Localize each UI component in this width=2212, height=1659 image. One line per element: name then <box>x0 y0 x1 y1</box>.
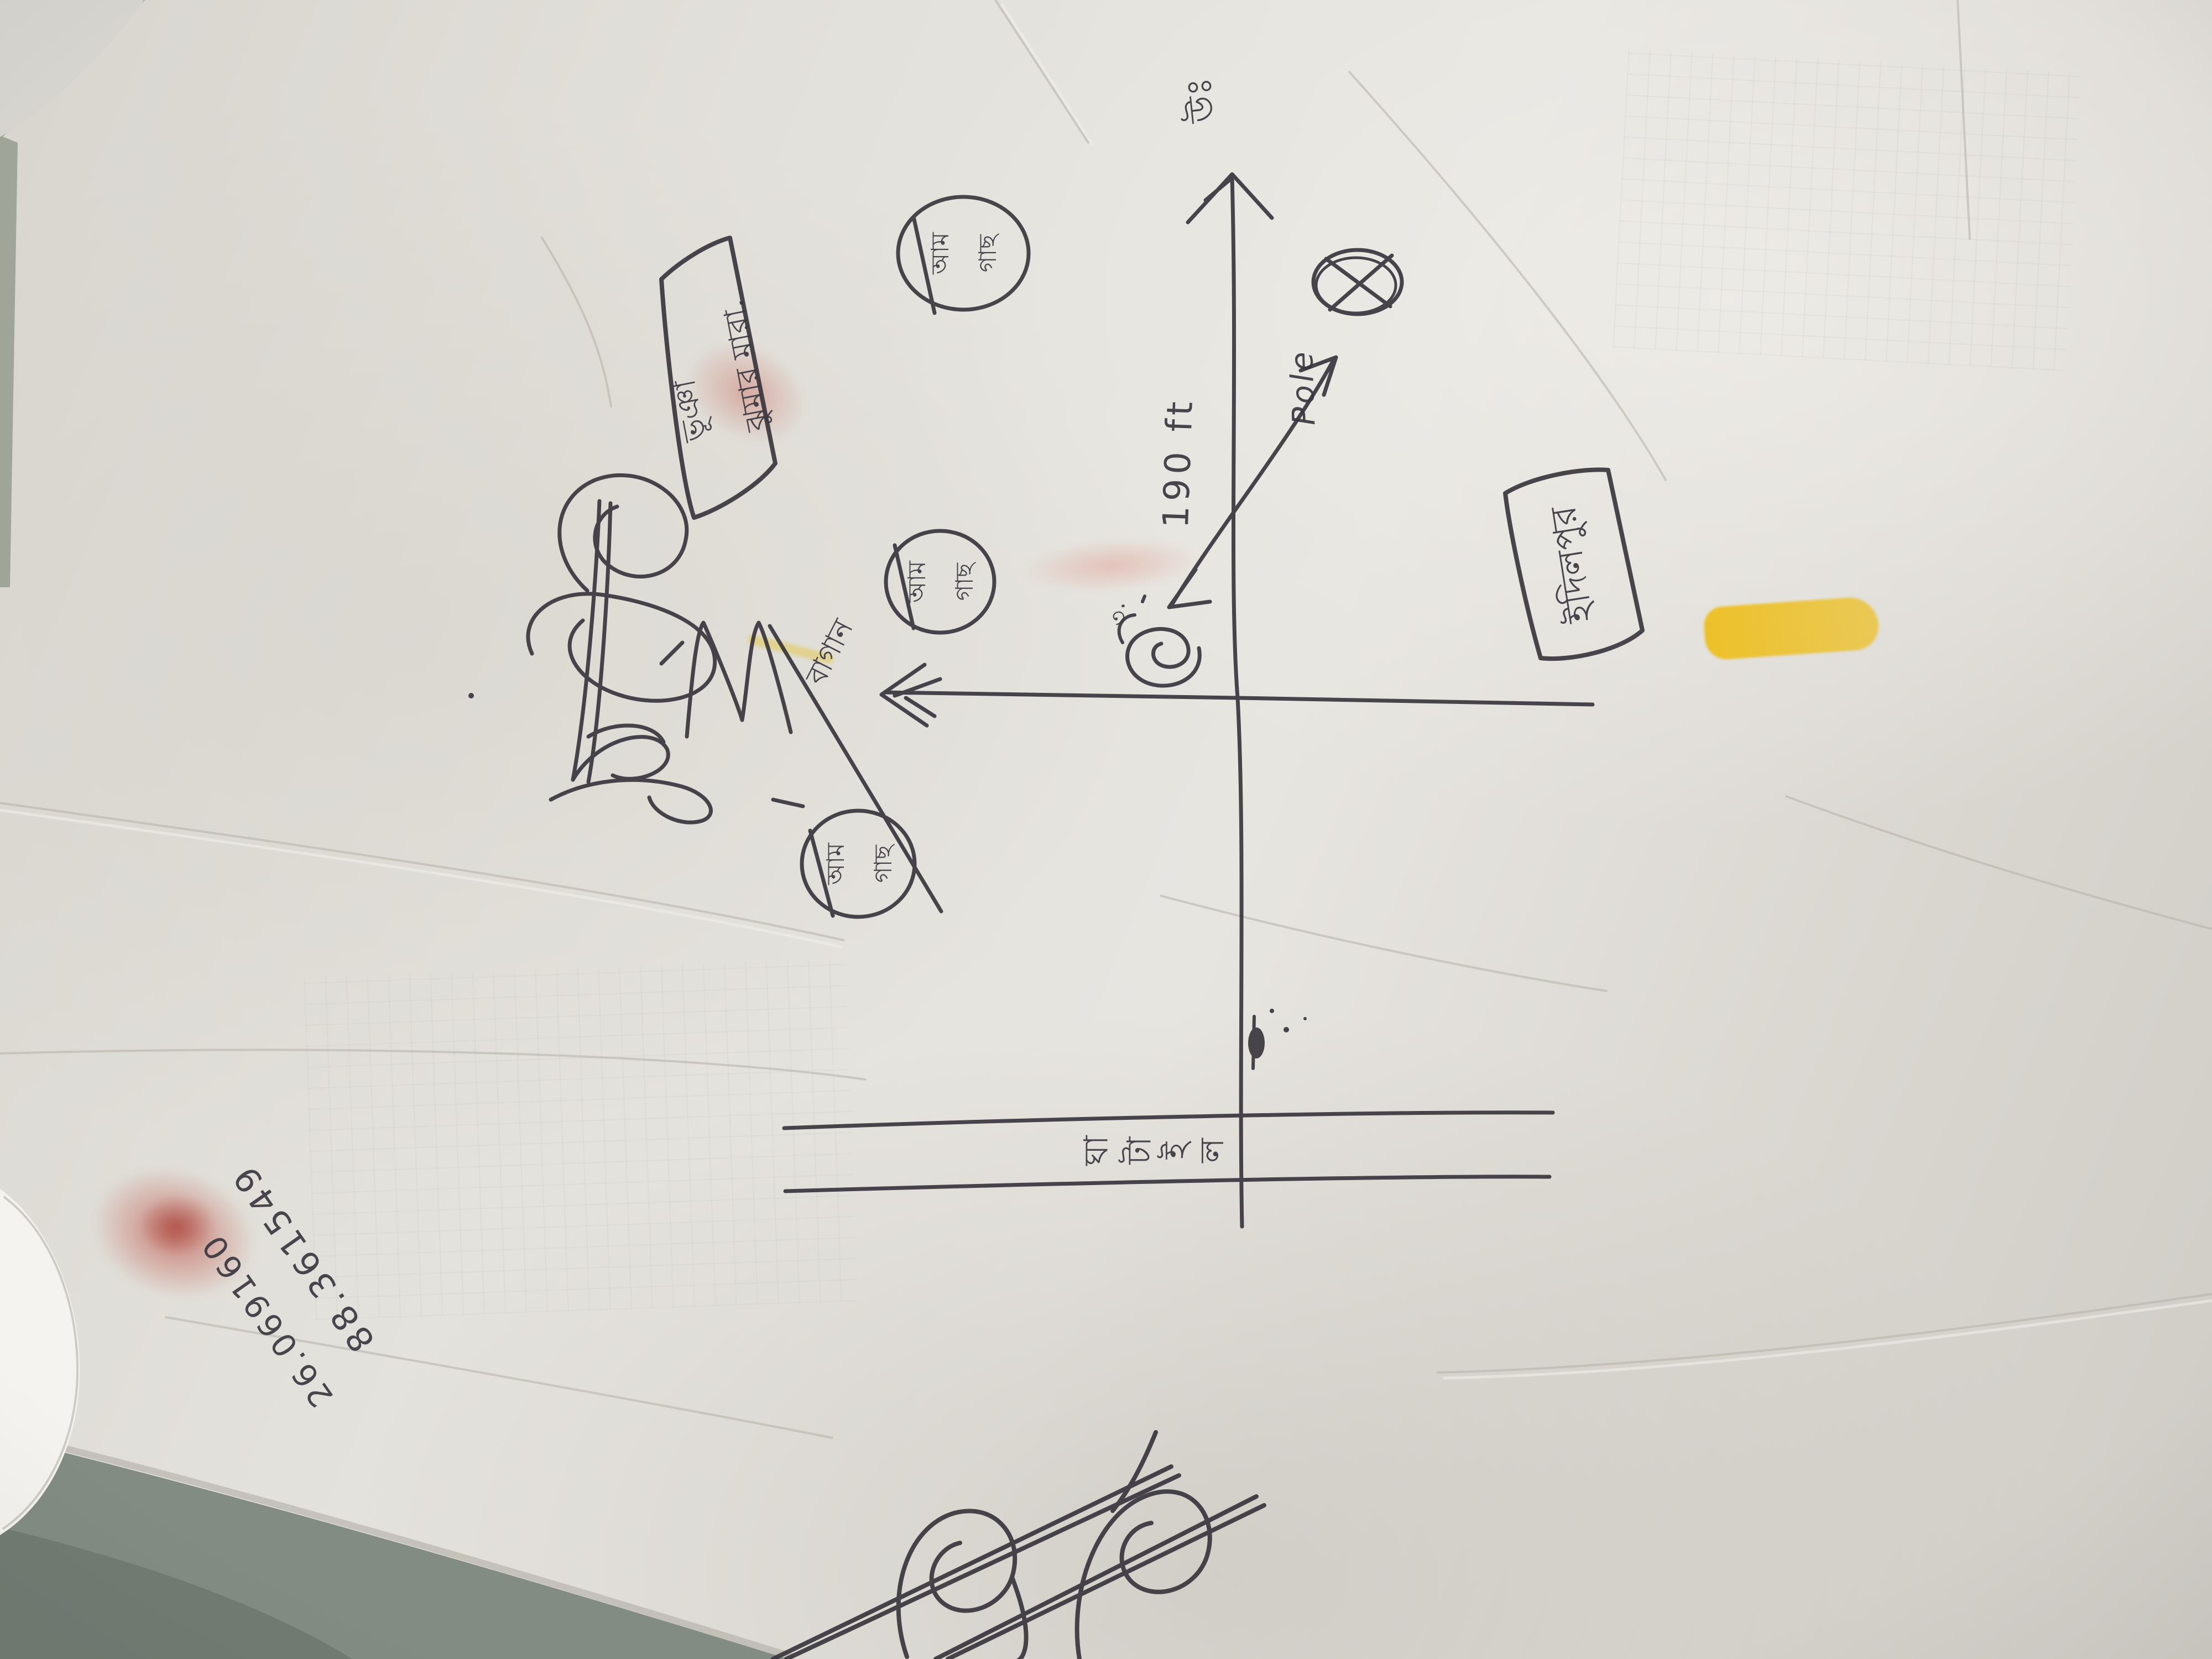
photo-of-sketch-map: উঃ Pole 190 ft ৩. ঝুমার মারা. ভূঞা ইদিলপ… <box>0 0 2212 1659</box>
photo-vignette <box>0 0 2212 1659</box>
